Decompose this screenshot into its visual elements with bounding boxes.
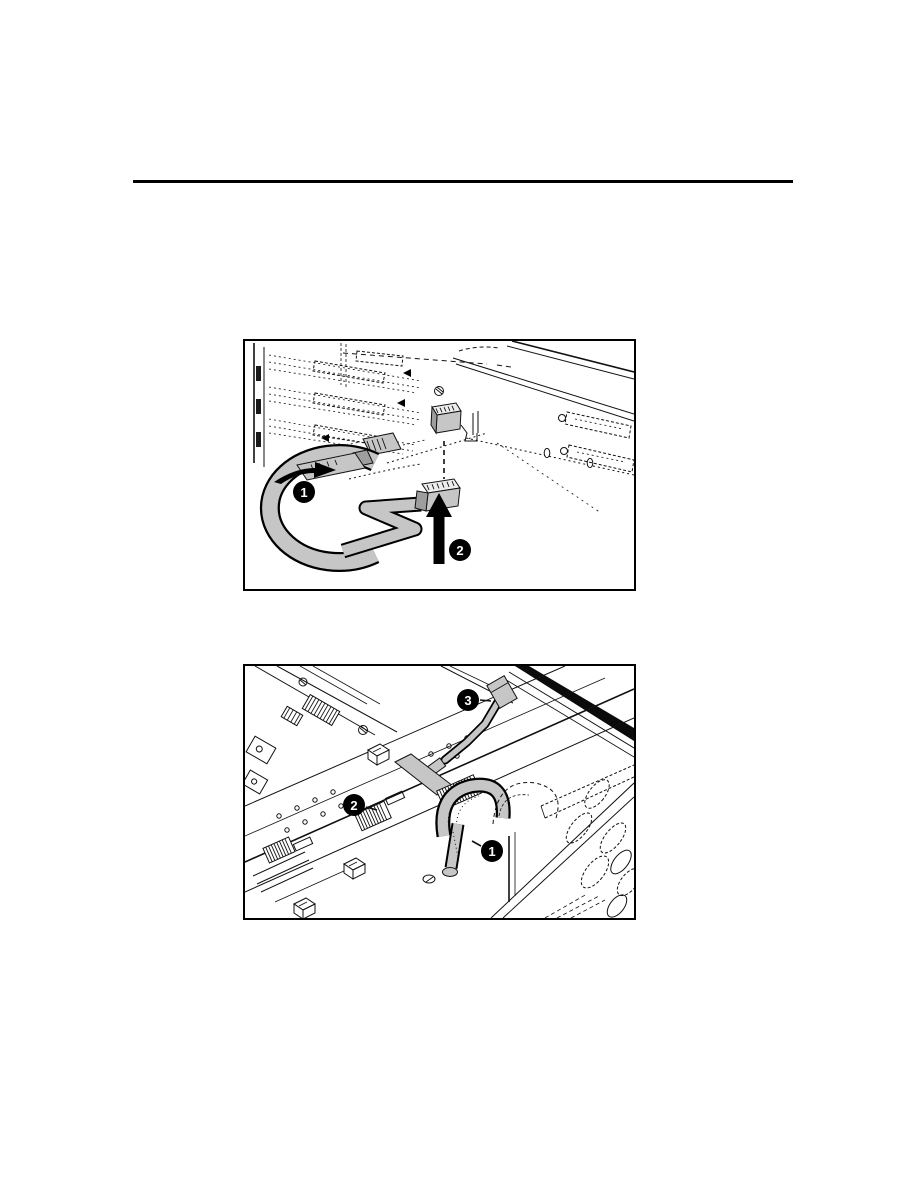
svg-text:1: 1 (300, 485, 307, 500)
svg-text:3: 3 (464, 693, 471, 708)
callout-3: 3 (457, 689, 491, 711)
svg-text:1: 1 (488, 844, 495, 859)
header-rule (133, 180, 793, 183)
callout-1: 1 (472, 840, 503, 862)
standoff (294, 898, 315, 918)
svg-text:2: 2 (456, 543, 463, 558)
figure-rear-cable-install-art: 1 2 (245, 341, 634, 589)
ribbon-cable-zfold (343, 504, 421, 551)
callout-2: 2 (449, 539, 471, 561)
cable-loop-assembly (395, 754, 558, 883)
chassis-floor-and-brackets (466, 412, 634, 513)
pci-socket (431, 387, 478, 442)
drive-cage (491, 765, 634, 918)
cable-connector-3 (487, 676, 517, 709)
standoff (368, 744, 389, 765)
slot-pointer-icon (321, 434, 329, 442)
standoff (344, 858, 365, 879)
upper-left-board (245, 666, 397, 794)
figure-rear-cable-install: 1 2 (243, 339, 636, 591)
slot-pointer-icon (397, 399, 405, 407)
figure-chassis-cable-routing-art: 1 2 3 (245, 666, 634, 918)
manual-page: 1 2 (0, 0, 918, 1188)
svg-text:2: 2 (350, 798, 357, 813)
slot-pointer-icon (403, 369, 411, 377)
figure-chassis-cable-routing: 1 2 3 (243, 664, 636, 920)
chassis-top-edges (343, 341, 634, 421)
callout-1: 1 (293, 481, 315, 503)
